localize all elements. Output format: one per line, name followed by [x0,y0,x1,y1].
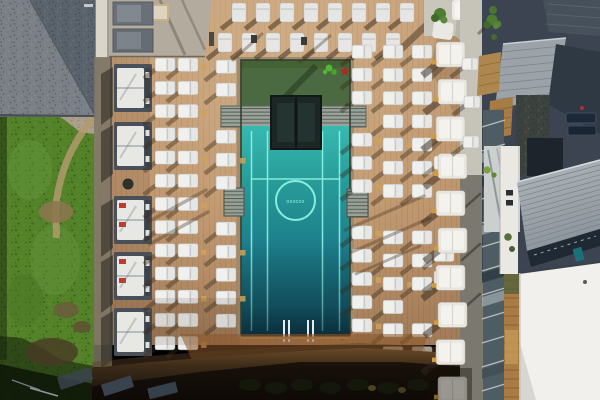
svg-text:osocos: osocos [286,199,304,205]
